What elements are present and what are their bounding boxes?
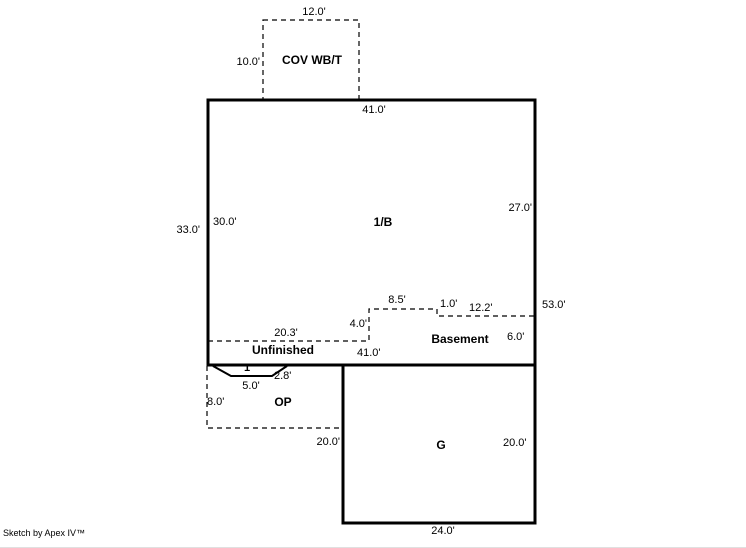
room-label-cov-porch: COV WB/T: [262, 54, 362, 67]
floorplan-lines: [0, 0, 746, 547]
dim-bay-bottom: 5.0': [238, 380, 264, 392]
dim-bay-side: 2.8': [274, 370, 291, 382]
room-label-bay: 1: [237, 363, 257, 374]
dim-basement-12-2: 12.2': [469, 302, 493, 314]
room-label-open-porch: OP: [268, 396, 298, 409]
dim-main-top: 41.0': [352, 104, 396, 116]
dim-basement-4-0: 4.0': [339, 318, 367, 330]
dim-cov-top: 12.0': [294, 6, 334, 18]
dim-basement-8-5: 8.5': [381, 294, 413, 306]
dim-basement-20-3: 20.3': [266, 327, 306, 339]
dim-cov-left: 10.0': [228, 56, 260, 68]
dim-basement-right: 6.0': [507, 331, 524, 343]
sketch-credit: Sketch by Apex IV™: [3, 528, 85, 538]
dim-basement-1-0: 1.0': [440, 298, 457, 310]
dim-garage-right: 20.0': [503, 437, 527, 449]
dim-garage-bottom: 24.0': [423, 525, 463, 537]
dim-main-left-inner: 30.0': [213, 216, 237, 228]
dim-main-right-inner: 27.0': [500, 202, 532, 214]
room-label-basement: Basement: [415, 333, 505, 346]
dim-basement-bottom: 41.0': [357, 347, 381, 359]
floorplan-sketch: 12.0' 10.0' COV WB/T 41.0' 33.0' 30.0' 1…: [0, 0, 746, 548]
dim-main-right-outer: 53.0': [542, 299, 566, 311]
room-label-unfinished: Unfinished: [238, 344, 328, 357]
dim-open-porch-left: 8.0': [207, 396, 224, 408]
main-house-walls: [208, 100, 535, 365]
room-label-first-floor: 1/B: [363, 216, 403, 229]
room-label-garage: G: [431, 439, 451, 452]
dim-garage-left: 20.0': [306, 436, 340, 448]
dim-main-left-outer: 33.0': [168, 224, 200, 236]
